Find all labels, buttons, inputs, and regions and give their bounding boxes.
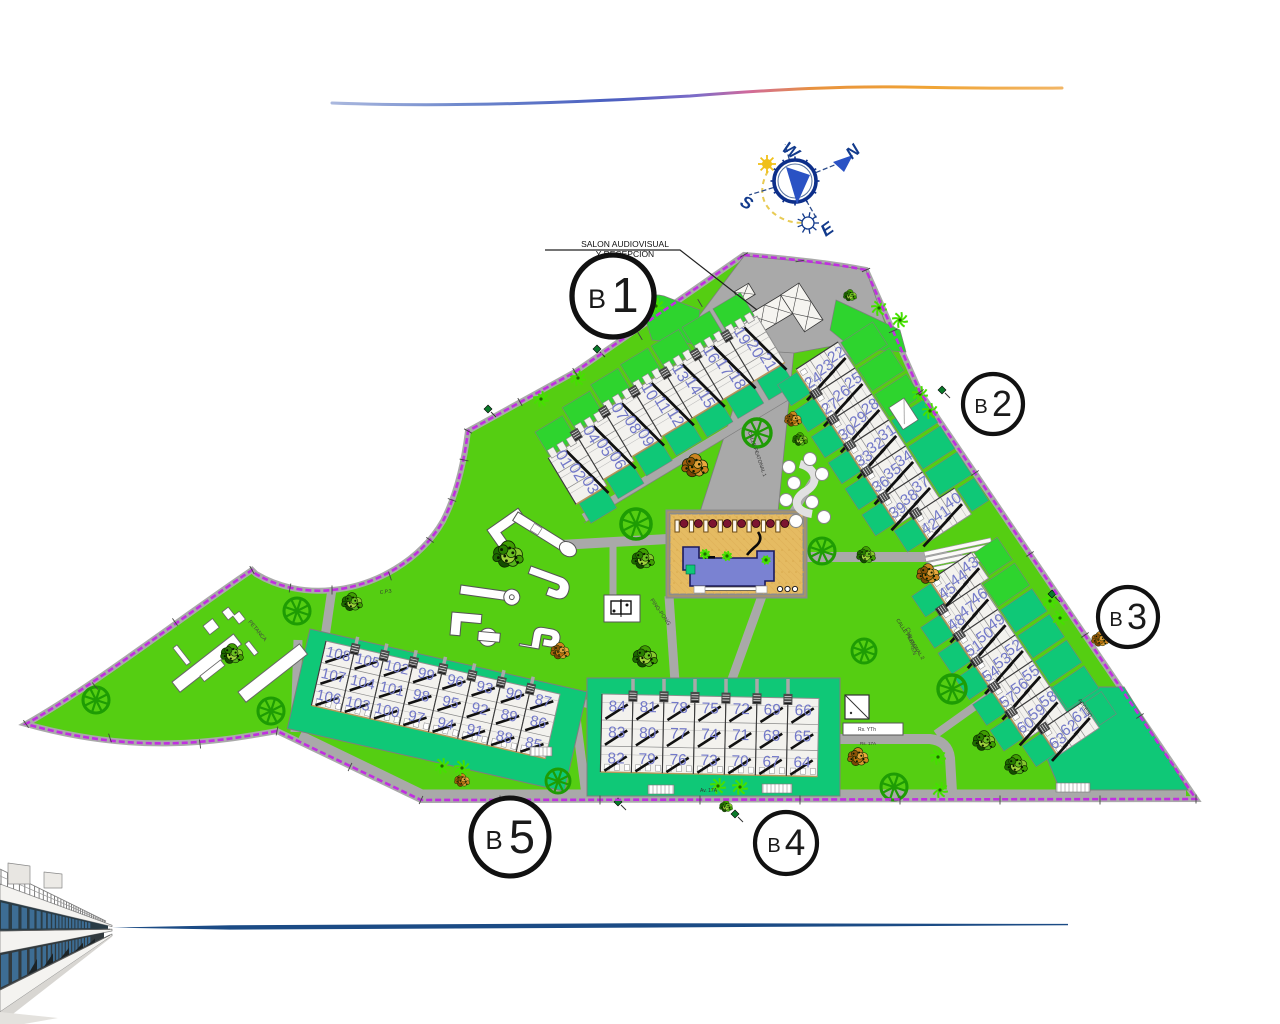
svg-text:83: 83 bbox=[608, 724, 626, 741]
svg-text:B: B bbox=[767, 835, 780, 857]
svg-text:SALON AUDIOVISUAL: SALON AUDIOVISUAL bbox=[581, 239, 669, 249]
svg-text:74: 74 bbox=[701, 726, 719, 743]
svg-text:67: 67 bbox=[762, 753, 780, 770]
svg-text:73: 73 bbox=[700, 752, 718, 769]
svg-text:84: 84 bbox=[608, 698, 626, 715]
svg-text:70: 70 bbox=[731, 753, 749, 770]
svg-text:4: 4 bbox=[785, 822, 806, 863]
svg-text:79: 79 bbox=[638, 751, 656, 768]
svg-text:3: 3 bbox=[1127, 596, 1147, 637]
svg-text:78: 78 bbox=[670, 700, 688, 717]
svg-text:68: 68 bbox=[763, 727, 781, 744]
svg-text:77: 77 bbox=[670, 726, 688, 743]
svg-text:71: 71 bbox=[732, 727, 750, 744]
svg-text:1: 1 bbox=[611, 269, 638, 323]
svg-text:72: 72 bbox=[732, 701, 750, 718]
svg-text:B: B bbox=[588, 284, 606, 314]
svg-text:65: 65 bbox=[794, 728, 812, 745]
svg-text:Rs. YTh: Rs. YTh bbox=[858, 727, 876, 733]
svg-text:2: 2 bbox=[992, 383, 1012, 424]
svg-text:81: 81 bbox=[639, 699, 657, 716]
svg-text:Av. 17A: Av. 17A bbox=[700, 788, 718, 794]
svg-text:Rs. 17A: Rs. 17A bbox=[860, 741, 876, 746]
svg-text:B: B bbox=[1109, 609, 1122, 631]
svg-text:76: 76 bbox=[669, 752, 687, 769]
svg-text:66: 66 bbox=[794, 702, 812, 719]
svg-text:B: B bbox=[974, 396, 987, 418]
svg-text:69: 69 bbox=[763, 701, 781, 718]
svg-text:E: E bbox=[817, 218, 838, 240]
svg-text:S: S bbox=[737, 192, 757, 214]
svg-text:5: 5 bbox=[509, 810, 535, 863]
svg-text:75: 75 bbox=[701, 700, 719, 717]
svg-text:82: 82 bbox=[607, 750, 625, 767]
svg-text:80: 80 bbox=[639, 725, 657, 742]
svg-text:64: 64 bbox=[793, 754, 811, 771]
svg-text:B: B bbox=[485, 825, 502, 855]
